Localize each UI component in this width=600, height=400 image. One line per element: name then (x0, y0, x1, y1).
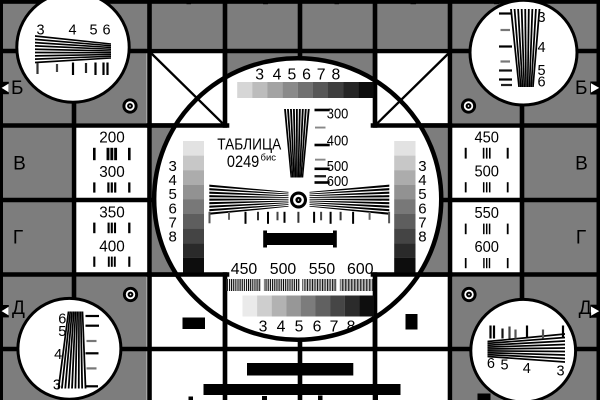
svg-text:5: 5 (89, 22, 97, 38)
svg-text:6: 6 (313, 318, 322, 335)
svg-text:3: 3 (36, 22, 44, 38)
svg-text:5: 5 (295, 318, 304, 335)
svg-text:В: В (13, 153, 26, 174)
svg-text:7: 7 (330, 318, 339, 335)
svg-text:4: 4 (277, 318, 286, 335)
svg-text:8: 8 (418, 229, 426, 246)
svg-text:600: 600 (474, 239, 499, 256)
svg-text:3: 3 (53, 378, 61, 394)
svg-text:В: В (575, 153, 588, 174)
svg-text:550: 550 (309, 261, 336, 278)
svg-text:600: 600 (327, 173, 349, 190)
svg-text:4: 4 (273, 67, 282, 84)
svg-text:3: 3 (259, 318, 268, 335)
svg-text:300: 300 (99, 164, 125, 181)
svg-text:6: 6 (302, 67, 311, 84)
svg-text:450: 450 (474, 129, 499, 146)
svg-text:Г: Г (576, 228, 586, 249)
svg-text:Д: Д (579, 298, 592, 319)
svg-text:бис: бис (261, 153, 277, 164)
svg-text:8: 8 (168, 229, 176, 246)
svg-text:4: 4 (68, 22, 76, 38)
svg-text:8: 8 (332, 67, 341, 84)
svg-text:5: 5 (288, 67, 297, 84)
svg-text:4: 4 (523, 361, 531, 377)
svg-text:3: 3 (255, 67, 264, 84)
svg-text:4: 4 (54, 347, 62, 363)
svg-text:Б: Б (11, 78, 23, 99)
svg-text:600: 600 (347, 261, 374, 278)
svg-text:3: 3 (557, 363, 565, 379)
svg-text:6: 6 (102, 22, 110, 38)
svg-text:6: 6 (537, 75, 545, 91)
svg-text:Д: Д (12, 298, 25, 319)
svg-text:400: 400 (327, 132, 349, 149)
svg-text:7: 7 (317, 67, 326, 84)
svg-text:8: 8 (347, 318, 356, 335)
svg-text:450: 450 (231, 261, 258, 278)
svg-text:200: 200 (99, 129, 125, 146)
svg-text:350: 350 (99, 204, 125, 221)
svg-text:550: 550 (474, 205, 499, 222)
svg-text:5: 5 (500, 358, 508, 374)
svg-text:500: 500 (474, 163, 499, 180)
svg-text:300: 300 (327, 105, 349, 122)
svg-text:3: 3 (537, 10, 545, 26)
svg-text:0249: 0249 (227, 152, 259, 171)
svg-text:Г: Г (13, 228, 23, 249)
svg-text:Б: Б (575, 78, 587, 99)
svg-text:4: 4 (537, 40, 545, 56)
svg-text:400: 400 (99, 238, 125, 255)
svg-text:500: 500 (270, 261, 297, 278)
svg-text:6: 6 (487, 356, 495, 372)
svg-text:5: 5 (58, 324, 66, 340)
